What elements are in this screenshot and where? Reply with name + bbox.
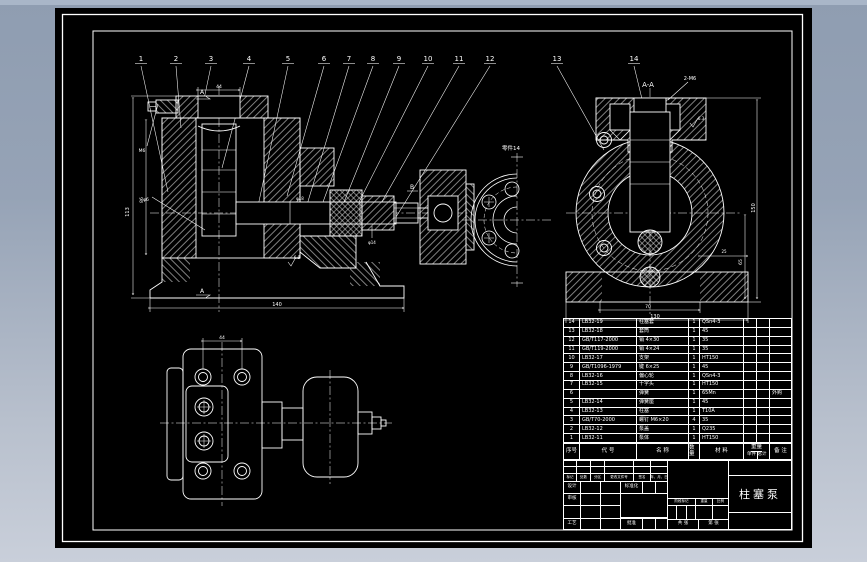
bom-header-qty: 数量 bbox=[688, 444, 699, 459]
bom-row: 7LB32-15十字头1HT150 bbox=[564, 380, 791, 389]
bom-row: 10LB32-17支架1HT150 bbox=[564, 353, 791, 362]
bom-cell-qty: 1 bbox=[688, 381, 699, 389]
bom-cell-remark bbox=[769, 337, 791, 345]
bom-cell-code: GB/T117-2000 bbox=[579, 337, 636, 345]
bom-cell-qty: 4 bbox=[688, 416, 699, 424]
bom-cell-no: 5 bbox=[564, 399, 579, 407]
bom-cell-code: LB32-18 bbox=[579, 328, 636, 336]
bom-row: 4LB32-13柱塞1T10A bbox=[564, 407, 791, 416]
dim-side-height2: 65 bbox=[738, 259, 744, 265]
plan-dim-top: 44 bbox=[219, 335, 225, 341]
bom-cell-remark: 外购 bbox=[769, 390, 791, 398]
tb-sheets-page: 第 张 bbox=[698, 519, 729, 530]
bom-cell-w2 bbox=[756, 399, 769, 407]
bom-cell-material: QSn4-3 bbox=[699, 372, 743, 380]
bom-cell-name: 十字头 bbox=[636, 381, 688, 389]
callout-12: 12 bbox=[486, 55, 495, 63]
bom-cell-w1 bbox=[743, 354, 756, 362]
bom-cell-w2 bbox=[756, 381, 769, 389]
bom-cell-w1 bbox=[743, 337, 756, 345]
bom-cell-material: HT150 bbox=[699, 434, 743, 442]
bom-header-remark: 备 注 bbox=[769, 444, 791, 459]
bom-row: 14LB32-19柱塞套1QSn4-3 bbox=[564, 319, 791, 327]
bom-cell-w1 bbox=[743, 425, 756, 433]
bom-cell-qty: 1 bbox=[688, 399, 699, 407]
bom-cell-no: 8 bbox=[564, 372, 579, 380]
title-block: 标记 处数 分区 更改文件号 签名 年、月、日 设计 标准化 审核 工艺 批准 … bbox=[563, 460, 792, 530]
bom-row: 12GB/T117-2000销 4×30135 bbox=[564, 336, 791, 345]
section-aa-title: A-A bbox=[642, 81, 654, 89]
bom-cell-w1 bbox=[743, 399, 756, 407]
bom-row: 2LB32-12泵盖1Q235 bbox=[564, 424, 791, 433]
bom-cell-remark bbox=[769, 354, 791, 362]
bom-cell-remark bbox=[769, 372, 791, 380]
bom-cell-w1 bbox=[743, 319, 756, 327]
bom-cell-material: HT150 bbox=[699, 381, 743, 389]
bom-cell-material: Q235 bbox=[699, 425, 743, 433]
bom-cell-name: 泵盖 bbox=[636, 425, 688, 433]
bom-cell-name: 泵体 bbox=[636, 434, 688, 442]
bom-cell-remark bbox=[769, 408, 791, 416]
bom-cell-no: 7 bbox=[564, 381, 579, 389]
bom-cell-remark bbox=[769, 434, 791, 442]
bom-cell-no: 2 bbox=[564, 425, 579, 433]
app-window: 1 2 3 4 5 6 7 8 9 10 11 12 13 14 bbox=[0, 0, 867, 562]
section-b-label: B bbox=[410, 184, 414, 191]
bom-cell-no: 14 bbox=[564, 319, 579, 327]
bom-cell-name: 键 6×25 bbox=[636, 363, 688, 371]
bom-cell-remark bbox=[769, 381, 791, 389]
bom-row: 3GB/T70-2000螺钉 M6×20435 bbox=[564, 415, 791, 424]
bom-header-code: 代 号 bbox=[579, 444, 636, 459]
bom-cell-w2 bbox=[756, 434, 769, 442]
bom-header-weight: 重量 单件 总计 bbox=[743, 444, 769, 459]
bom-cell-no: 13 bbox=[564, 328, 579, 336]
bom-cell-no: 11 bbox=[564, 346, 579, 354]
bom-cell-w1 bbox=[743, 363, 756, 371]
bom-cell-material: 45 bbox=[699, 399, 743, 407]
callout-13: 13 bbox=[553, 55, 562, 63]
bom-cell-name: 偏心轮 bbox=[636, 372, 688, 380]
dim-side-base: 25 bbox=[721, 249, 727, 254]
tb-part-name: 柱塞泵 bbox=[728, 475, 792, 513]
bom-cell-name: 套筒 bbox=[636, 328, 688, 336]
bom-cell-remark bbox=[769, 416, 791, 424]
bom-cell-remark bbox=[769, 399, 791, 407]
bom-cell-code: LB32-13 bbox=[579, 408, 636, 416]
bom-row: 9GB/T1096-1979键 6×25145 bbox=[564, 362, 791, 371]
bom-cell-remark bbox=[769, 363, 791, 371]
bom-cell-name: 螺钉 M6×20 bbox=[636, 416, 688, 424]
dim-shaft: φ18 bbox=[296, 196, 304, 201]
bom-cell-w1 bbox=[743, 346, 756, 354]
bom-cell-code: LB32-14 bbox=[579, 399, 636, 407]
bom-cell-material: 45 bbox=[699, 328, 743, 336]
bom-cell-name: 弹簧 bbox=[636, 390, 688, 398]
finish-mark-main: 6.3 bbox=[294, 255, 301, 260]
bom-cell-name: 柱塞套 bbox=[636, 319, 688, 327]
bom-cell-no: 6 bbox=[564, 390, 579, 398]
bom-cell-w2 bbox=[756, 319, 769, 327]
bom-header-weight-total: 总计 bbox=[757, 452, 767, 459]
bom-header: 序号 代 号 名 称 数量 材 料 重量 单件 总计 备 注 bbox=[563, 443, 792, 460]
thread-note: 2-M6 bbox=[684, 76, 696, 82]
flange-view-label: 零件14 bbox=[502, 144, 520, 152]
bom-cell-w1 bbox=[743, 434, 756, 442]
callout-5: 5 bbox=[286, 55, 290, 63]
bom-header-weight-each: 单件 bbox=[747, 452, 757, 459]
callout-4: 4 bbox=[247, 55, 252, 63]
bom-cell-code: LB32-12 bbox=[579, 425, 636, 433]
bom-cell-w1 bbox=[743, 390, 756, 398]
bom-cell-name: 弹簧座 bbox=[636, 399, 688, 407]
bom-cell-material: 35 bbox=[699, 337, 743, 345]
bom-cell-qty: 1 bbox=[688, 425, 699, 433]
callout-6: 6 bbox=[322, 55, 327, 63]
bom-cell-code: LB32-16 bbox=[579, 372, 636, 380]
bom-cell-code: LB32-15 bbox=[579, 381, 636, 389]
bom-row: 11GB/T119-2000销 4×24135 bbox=[564, 345, 791, 354]
callout-3: 3 bbox=[209, 55, 213, 63]
bom-cell-code: GB/T70-2000 bbox=[579, 416, 636, 424]
tb-sheets-total: 共 张 bbox=[667, 519, 699, 530]
callout-7: 7 bbox=[347, 55, 351, 63]
bom-cell-code: GB/T1096-1979 bbox=[579, 363, 636, 371]
bom-header-no: 序号 bbox=[564, 444, 579, 459]
bom-row: 1LB32-11泵体1HT150 bbox=[564, 433, 791, 442]
callout-1: 1 bbox=[139, 55, 143, 63]
bom-cell-w2 bbox=[756, 346, 769, 354]
bom-cell-qty: 1 bbox=[688, 363, 699, 371]
bom-cell-qty: 1 bbox=[688, 408, 699, 416]
bom-cell-name: 销 4×30 bbox=[636, 337, 688, 345]
callout-14: 14 bbox=[630, 55, 639, 63]
bom-cell-name: 柱塞 bbox=[636, 408, 688, 416]
tb-approve: 批准 bbox=[620, 518, 643, 530]
bom-cell-material: HT150 bbox=[699, 354, 743, 362]
bom-row: 6弹簧165Mn外购 bbox=[564, 389, 791, 398]
bom-row: 8LB32-16偏心轮1QSn4-3 bbox=[564, 371, 791, 380]
bom-cell-code: LB32-19 bbox=[579, 319, 636, 327]
bom-cell-name: 支架 bbox=[636, 354, 688, 362]
bom-cell-no: 12 bbox=[564, 337, 579, 345]
bom-cell-qty: 1 bbox=[688, 319, 699, 327]
bom-cell-w1 bbox=[743, 416, 756, 424]
bom-cell-qty: 1 bbox=[688, 328, 699, 336]
bom-cell-material: T10A bbox=[699, 408, 743, 416]
bom-cell-w2 bbox=[756, 372, 769, 380]
bom-cell-w2 bbox=[756, 354, 769, 362]
bom-cell-no: 10 bbox=[564, 354, 579, 362]
bom-cell-remark bbox=[769, 425, 791, 433]
callout-11: 11 bbox=[455, 55, 464, 63]
callout-9: 9 bbox=[397, 55, 401, 63]
bom-cell-w2 bbox=[756, 328, 769, 336]
bom-cell-qty: 1 bbox=[688, 434, 699, 442]
dim-hole: φ6 bbox=[143, 197, 149, 203]
callout-10: 10 bbox=[424, 55, 433, 63]
bom-cell-material: 45 bbox=[699, 363, 743, 371]
bom-table: 14LB32-19柱塞套1QSn4-313LB32-18套筒14512GB/T1… bbox=[563, 318, 792, 460]
bom-cell-material: 65Mn bbox=[699, 390, 743, 398]
bom-cell-remark bbox=[769, 328, 791, 336]
dim-total-height: 113 bbox=[125, 207, 131, 217]
bom-cell-remark bbox=[769, 346, 791, 354]
bom-cell-w1 bbox=[743, 408, 756, 416]
bom-cell-qty: 1 bbox=[688, 354, 699, 362]
dim-side-height: 150 bbox=[751, 203, 757, 213]
dim-gland: φ14 bbox=[368, 240, 376, 245]
bom-cell-no: 1 bbox=[564, 434, 579, 442]
bom-header-name: 名 称 bbox=[636, 444, 688, 459]
bom-cell-code: LB32-17 bbox=[579, 354, 636, 362]
dim-screw: M6 bbox=[139, 148, 146, 154]
bom-cell-no: 3 bbox=[564, 416, 579, 424]
bom-cell-code: LB32-11 bbox=[579, 434, 636, 442]
bom-header-material: 材 料 bbox=[699, 444, 743, 459]
bom-cell-w2 bbox=[756, 337, 769, 345]
tb-process: 工艺 bbox=[563, 518, 581, 530]
bom-cell-code bbox=[579, 390, 636, 398]
bom-cell-material: 35 bbox=[699, 416, 743, 424]
finish-mark-side: 6.3 bbox=[698, 116, 705, 121]
bom-cell-material: 35 bbox=[699, 346, 743, 354]
bom-cell-w1 bbox=[743, 372, 756, 380]
bom-cell-qty: 1 bbox=[688, 372, 699, 380]
bom-cell-material: QSn4-3 bbox=[699, 319, 743, 327]
bom-cell-no: 9 bbox=[564, 363, 579, 371]
dim-total-width: 140 bbox=[272, 302, 282, 308]
bom-cell-w2 bbox=[756, 425, 769, 433]
bom-cell-w1 bbox=[743, 381, 756, 389]
dim-side-width2: 70 bbox=[645, 304, 651, 310]
bom-cell-w2 bbox=[756, 408, 769, 416]
bom-cell-code: GB/T119-2000 bbox=[579, 346, 636, 354]
callout-2: 2 bbox=[174, 55, 178, 63]
callout-8: 8 bbox=[371, 55, 375, 63]
bom-row: 5LB32-14弹簧座145 bbox=[564, 398, 791, 407]
bom-cell-w2 bbox=[756, 363, 769, 371]
bom-cell-w2 bbox=[756, 390, 769, 398]
bom-rows: 14LB32-19柱塞套1QSn4-313LB32-18套筒14512GB/T1… bbox=[563, 318, 792, 443]
bom-cell-qty: 1 bbox=[688, 390, 699, 398]
bom-cell-w2 bbox=[756, 416, 769, 424]
bom-cell-qty: 1 bbox=[688, 346, 699, 354]
bom-cell-qty: 1 bbox=[688, 337, 699, 345]
bom-cell-no: 4 bbox=[564, 408, 579, 416]
bom-cell-w1 bbox=[743, 328, 756, 336]
bom-cell-remark bbox=[769, 319, 791, 327]
dim-cap-width: 44 bbox=[216, 84, 222, 90]
bom-row: 13LB32-18套筒145 bbox=[564, 327, 791, 336]
bom-cell-name: 销 4×24 bbox=[636, 346, 688, 354]
